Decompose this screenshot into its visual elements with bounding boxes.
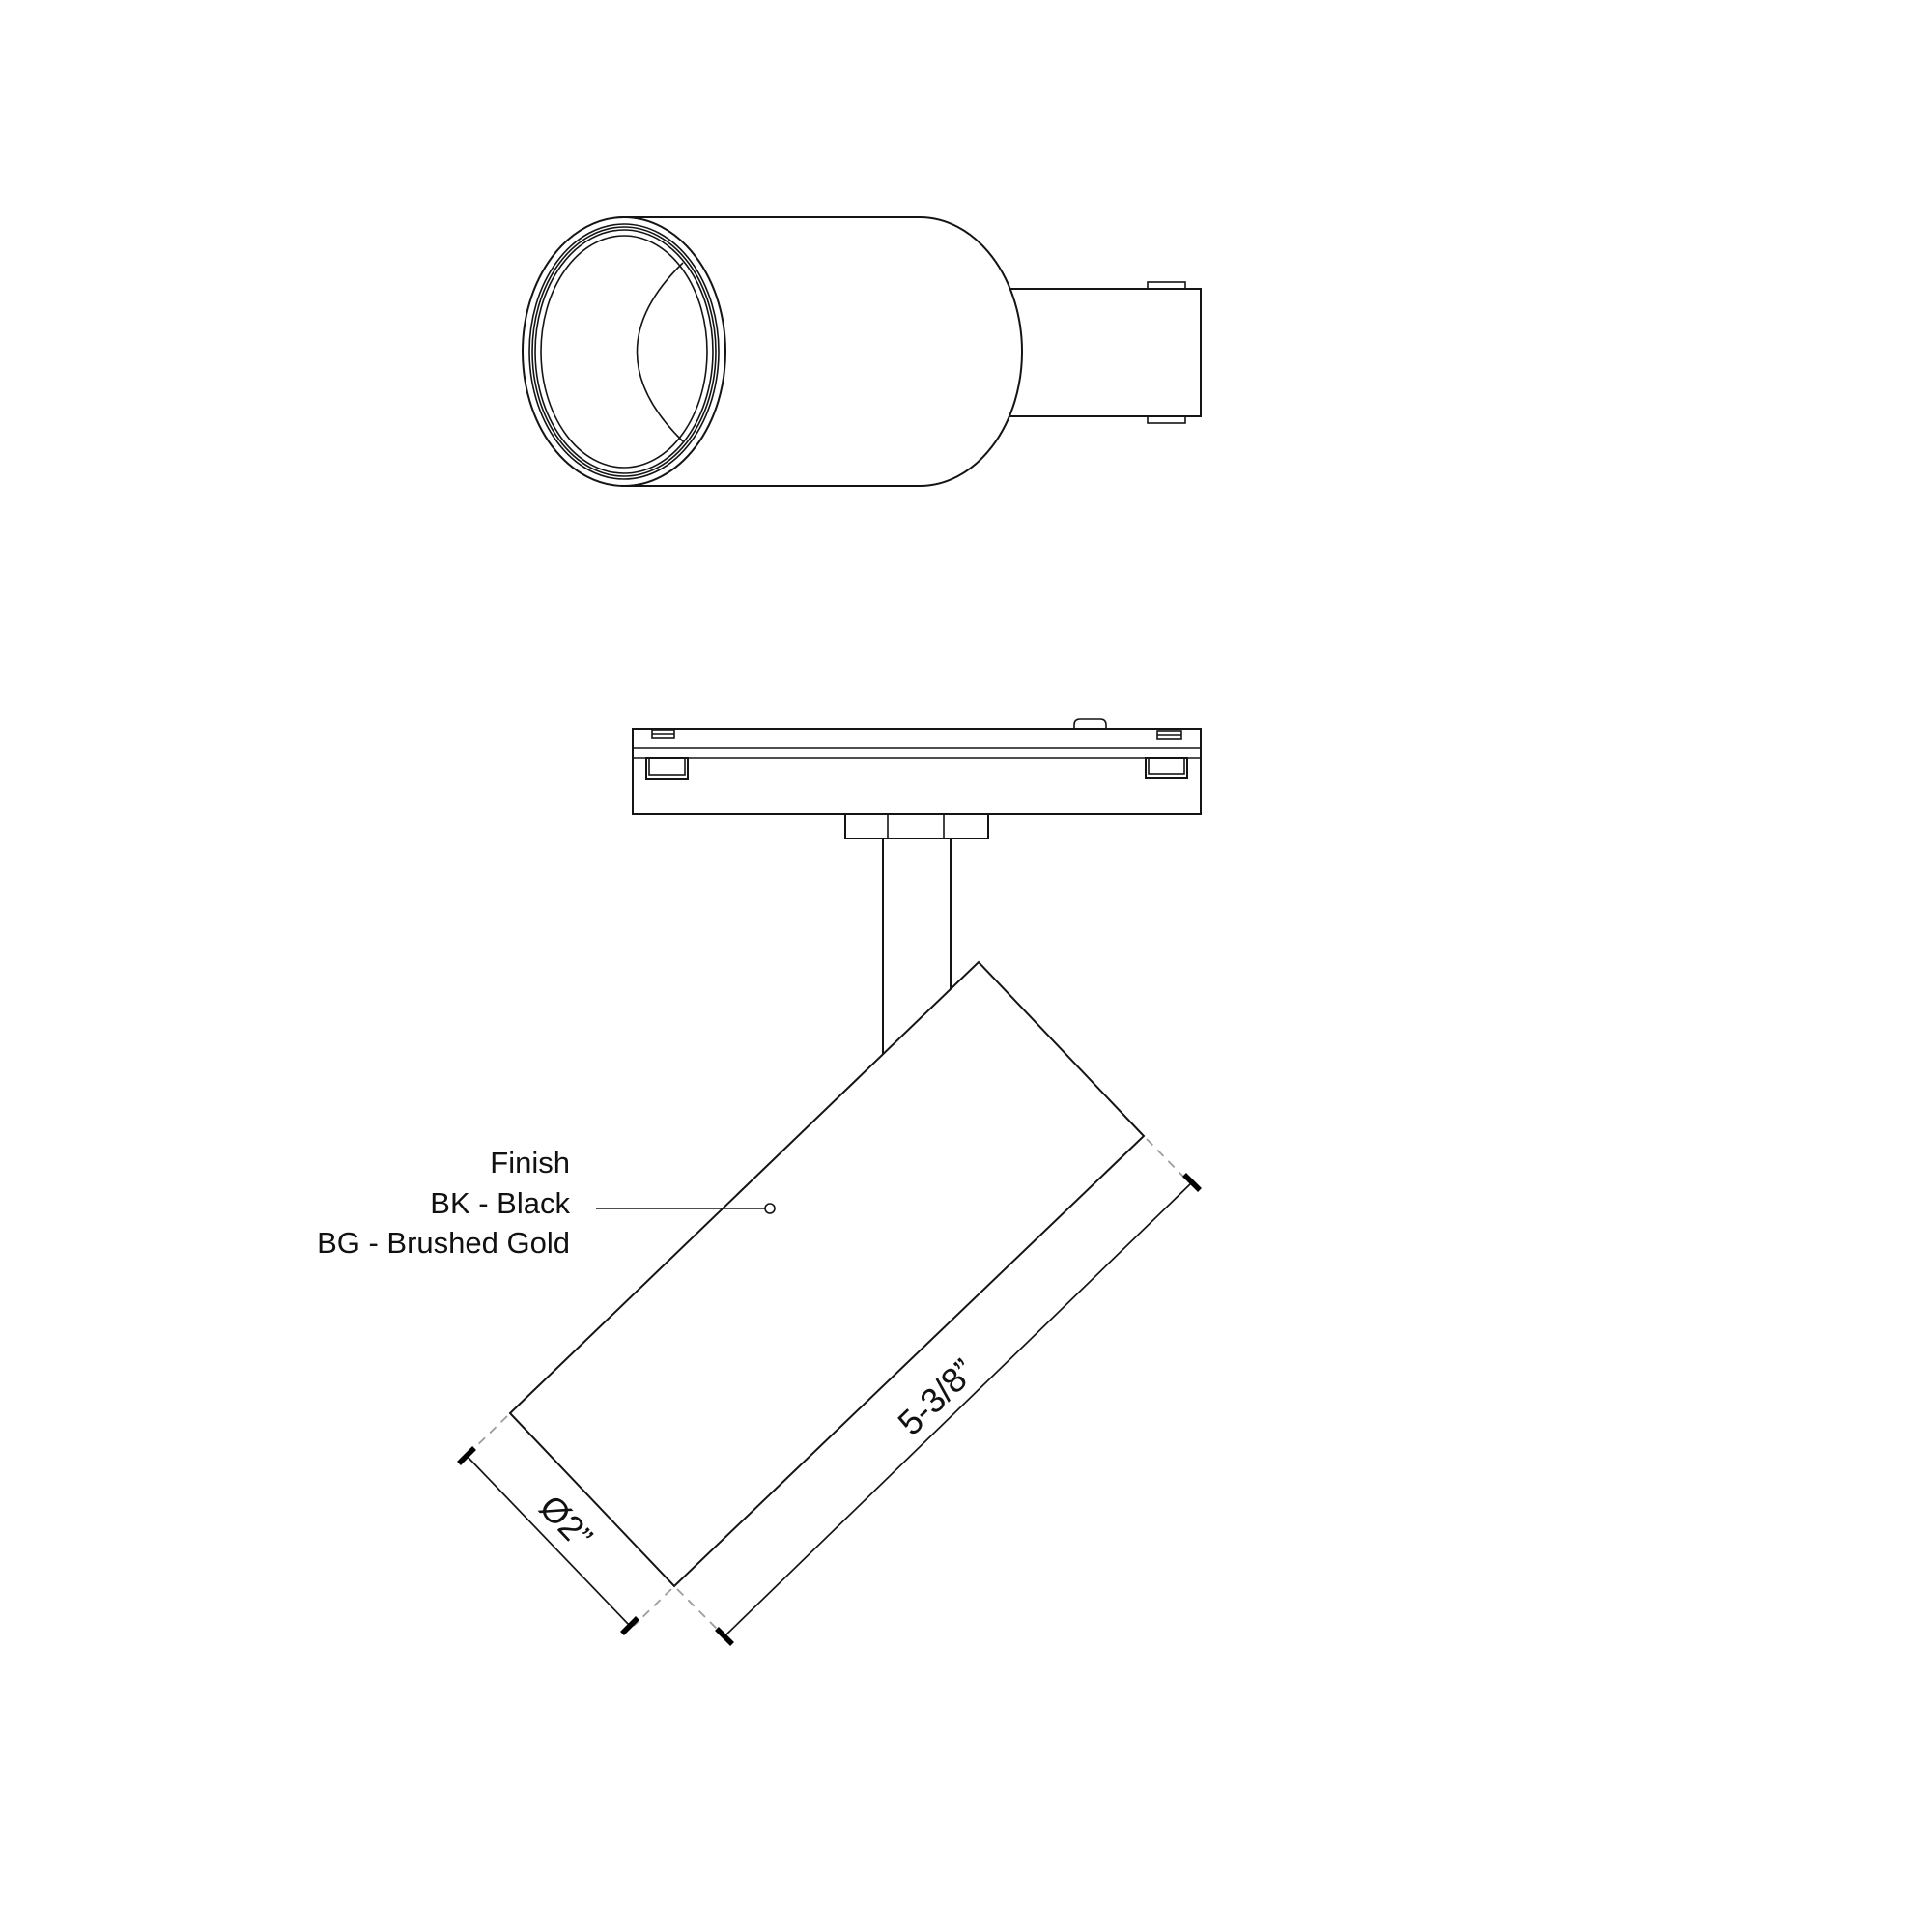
bezel-ring bbox=[529, 224, 719, 479]
extension-line bbox=[469, 1416, 507, 1453]
length-dimension-line bbox=[724, 1182, 1192, 1636]
bezel-ring-outer bbox=[523, 217, 725, 486]
lens-aperture-arc bbox=[638, 263, 684, 441]
side-view bbox=[510, 719, 1201, 1586]
cylinder-side-outline bbox=[510, 962, 1144, 1586]
side-clip-left bbox=[646, 758, 688, 779]
finish-leader-dot bbox=[765, 1204, 775, 1213]
bezel-ring bbox=[535, 230, 713, 473]
side-clip-right-inner bbox=[1149, 758, 1184, 774]
extension-line bbox=[1147, 1139, 1186, 1179]
extension-line bbox=[634, 1589, 671, 1626]
adapter-block-outline bbox=[1009, 289, 1201, 416]
finish-annotation: Finish BK - Black BG - Brushed Gold bbox=[317, 1146, 775, 1260]
side-clip-left-inner bbox=[649, 758, 685, 775]
finish-option-black: BK - Black bbox=[430, 1186, 570, 1220]
bezel-ring bbox=[532, 227, 716, 476]
release-button bbox=[1074, 719, 1106, 729]
adapter-tab-bottom bbox=[1148, 416, 1185, 423]
side-clip-right bbox=[1146, 758, 1187, 778]
adapter-tab-top bbox=[1148, 282, 1185, 289]
top-view bbox=[523, 217, 1201, 486]
track-adapter-outline bbox=[633, 729, 1201, 814]
track-head-spec-drawing: Ø2” 5-3/8” Finish BK - Black BG - Brushe… bbox=[0, 0, 1932, 1932]
extension-line bbox=[677, 1589, 718, 1630]
bezel-ring-inner bbox=[541, 236, 707, 468]
hex-nut bbox=[845, 814, 988, 838]
finish-option-gold: BG - Brushed Gold bbox=[317, 1226, 570, 1260]
dimension-annotations: Ø2” 5-3/8” bbox=[459, 1139, 1200, 1644]
drawing-canvas: Ø2” 5-3/8” Finish BK - Black BG - Brushe… bbox=[0, 0, 1932, 1932]
finish-title: Finish bbox=[490, 1146, 570, 1179]
diameter-dimension-line bbox=[467, 1456, 630, 1626]
